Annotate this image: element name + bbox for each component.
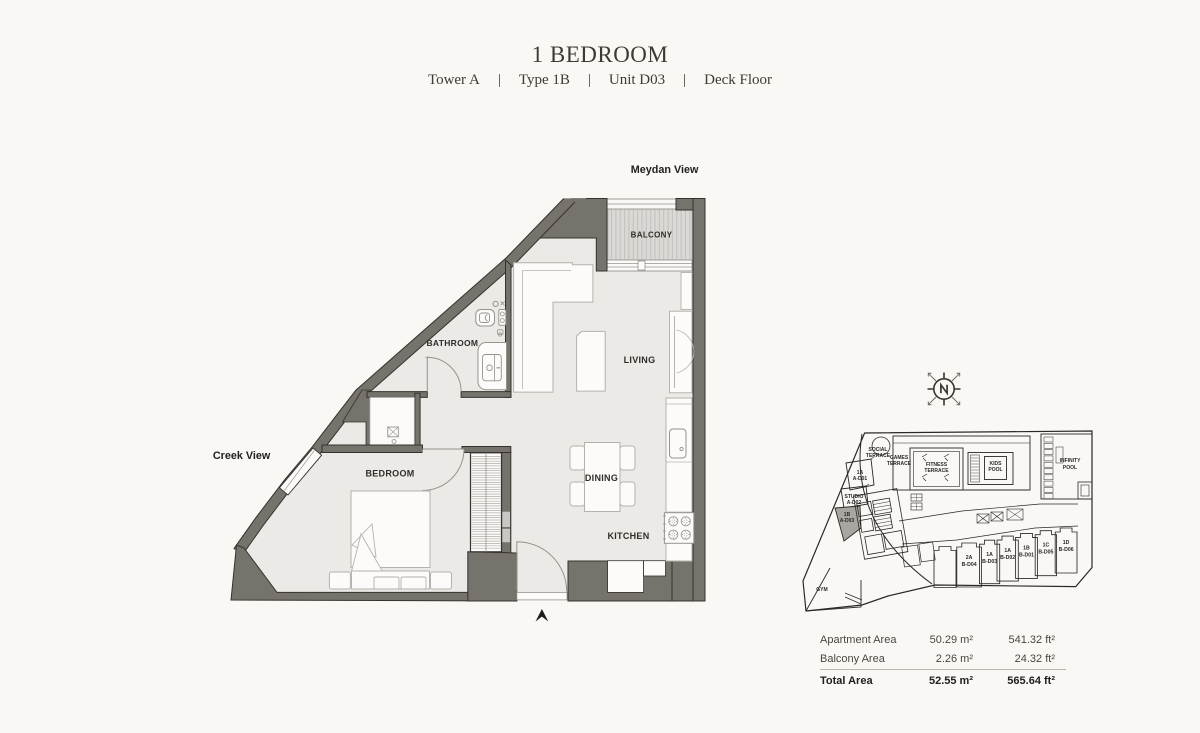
svg-text:BALCONY: BALCONY bbox=[631, 231, 673, 240]
svg-text:BEDROOM: BEDROOM bbox=[365, 469, 414, 479]
svg-text:Meydan View: Meydan View bbox=[631, 164, 699, 176]
svg-text:1D: 1D bbox=[1063, 540, 1070, 546]
svg-text:INFINITY: INFINITY bbox=[1060, 458, 1081, 464]
svg-text:2A: 2A bbox=[966, 555, 973, 561]
svg-text:DINING: DINING bbox=[585, 473, 618, 483]
svg-text:KITCHEN: KITCHEN bbox=[607, 531, 649, 541]
svg-text:Creek View: Creek View bbox=[213, 450, 271, 462]
svg-text:GYM: GYM bbox=[816, 587, 827, 593]
svg-text:BATHROOM: BATHROOM bbox=[426, 338, 478, 348]
svg-text:B-D05: B-D05 bbox=[1038, 550, 1053, 556]
svg-text:B-D02: B-D02 bbox=[1000, 555, 1015, 561]
svg-text:1A: 1A bbox=[986, 552, 993, 558]
svg-text:B-D01: B-D01 bbox=[1019, 552, 1034, 558]
svg-text:A-D02: A-D02 bbox=[847, 500, 862, 506]
svg-text:B-D06: B-D06 bbox=[1059, 547, 1074, 553]
svg-text:POOL: POOL bbox=[988, 467, 1002, 473]
svg-text:B-D04: B-D04 bbox=[962, 562, 977, 568]
svg-text:1A: 1A bbox=[1004, 548, 1011, 554]
svg-text:TERRACE: TERRACE bbox=[866, 453, 891, 459]
svg-text:LIVING: LIVING bbox=[624, 355, 656, 365]
svg-text:A-D01: A-D01 bbox=[853, 476, 868, 482]
svg-text:B-D03: B-D03 bbox=[982, 559, 997, 565]
svg-text:TERRACE: TERRACE bbox=[924, 468, 949, 474]
svg-text:POOL: POOL bbox=[1063, 465, 1077, 471]
svg-text:A-D03: A-D03 bbox=[840, 518, 855, 524]
svg-text:TERRACE: TERRACE bbox=[887, 461, 912, 467]
svg-text:1B: 1B bbox=[1023, 545, 1030, 551]
svg-text:1C: 1C bbox=[1043, 543, 1050, 549]
